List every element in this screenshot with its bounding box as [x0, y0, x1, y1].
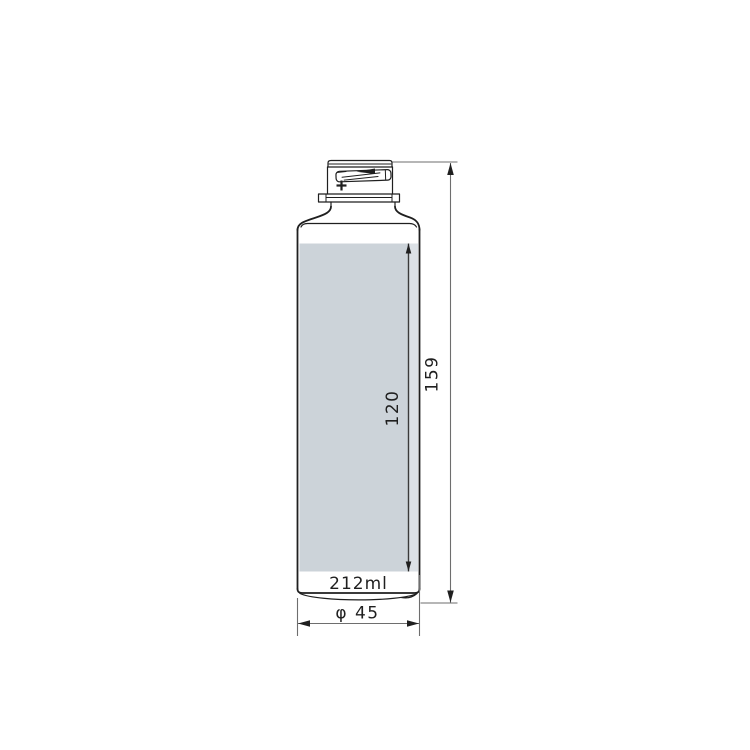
cap-spout-arrow-mark: [357, 169, 376, 175]
arrowhead-right-icon: [407, 620, 419, 627]
dimension-text-label-height: 120: [383, 390, 403, 427]
cap-flange: [319, 194, 400, 202]
cap-spout-hatch-2: [344, 176, 378, 180]
body-top-edge: [301, 224, 417, 228]
dimension-text-total-height: 159: [423, 356, 443, 393]
label-panel-highlight: [409, 244, 419, 572]
dimension-text-diameter: φ 45: [335, 604, 379, 624]
arrowhead-left-icon: [298, 620, 310, 627]
arrowhead-up-icon: [447, 163, 454, 175]
drawing-canvas: 159 120 212ml φ 45: [0, 0, 750, 750]
shoulder-left-curve: [298, 207, 332, 231]
arrowhead-down-icon: [447, 591, 454, 603]
cap-group: [319, 161, 400, 208]
volume-text: 212ml: [329, 574, 388, 594]
bottle-technical-drawing: 159 120 212ml φ 45: [0, 0, 750, 750]
base-arc: [300, 594, 417, 600]
